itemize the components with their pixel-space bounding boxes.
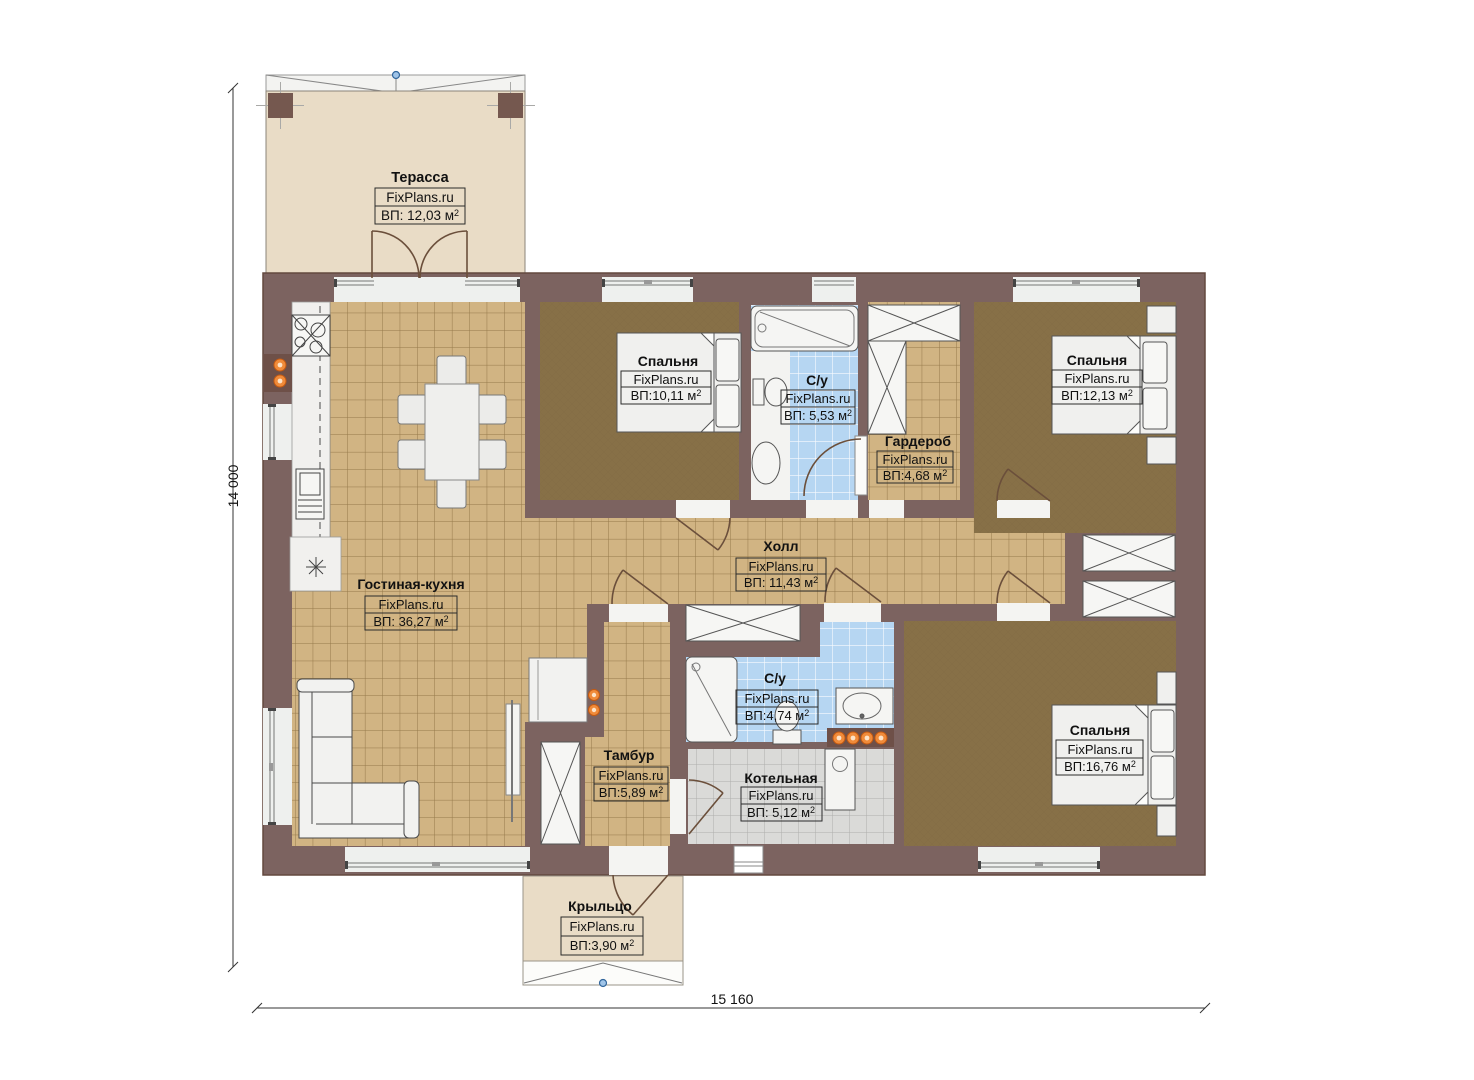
svg-text:Котельная: Котельная <box>744 770 817 786</box>
svg-text:FixPlans.ru: FixPlans.ru <box>882 452 947 467</box>
svg-text:ВП: 36,27 м2: ВП: 36,27 м2 <box>373 614 448 629</box>
svg-text:FixPlans.ru: FixPlans.ru <box>386 190 454 205</box>
svg-text:Спальня: Спальня <box>1067 352 1127 368</box>
svg-text:Гардероб: Гардероб <box>885 433 952 449</box>
svg-text:С/у: С/у <box>806 372 828 388</box>
svg-text:FixPlans.ru: FixPlans.ru <box>744 691 809 706</box>
svg-text:Тамбур: Тамбур <box>604 747 655 763</box>
svg-text:ВП:16,76 м2: ВП:16,76 м2 <box>1064 759 1136 774</box>
svg-text:ВП: 12,03 м2: ВП: 12,03 м2 <box>381 208 459 223</box>
svg-text:ВП:3,90 м2: ВП:3,90 м2 <box>570 938 635 953</box>
svg-text:Гостиная-кухня: Гостиная-кухня <box>357 576 464 592</box>
svg-text:Холл: Холл <box>763 538 798 554</box>
svg-text:Спальня: Спальня <box>1070 722 1130 738</box>
svg-text:ВП: 11,43 м2: ВП: 11,43 м2 <box>744 575 818 590</box>
svg-text:ВП: 5,53 м2: ВП: 5,53 м2 <box>784 408 852 423</box>
svg-text:FixPlans.ru: FixPlans.ru <box>633 372 698 387</box>
svg-text:Крыльцо: Крыльцо <box>568 898 632 914</box>
svg-text:ВП:10,11 м2: ВП:10,11 м2 <box>631 388 702 403</box>
svg-text:Терасса: Терасса <box>391 170 449 186</box>
svg-text:15 160: 15 160 <box>711 991 754 1007</box>
svg-text:ВП:12,13 м2: ВП:12,13 м2 <box>1061 388 1133 403</box>
svg-text:FixPlans.ru: FixPlans.ru <box>1064 371 1129 386</box>
svg-text:FixPlans.ru: FixPlans.ru <box>785 391 850 406</box>
svg-text:ВП:4,68 м2: ВП:4,68 м2 <box>883 468 948 483</box>
svg-text:ВП:5,89 м2: ВП:5,89 м2 <box>599 785 664 800</box>
svg-text:ВП: 5,12 м2: ВП: 5,12 м2 <box>747 805 815 820</box>
svg-text:FixPlans.ru: FixPlans.ru <box>569 919 634 934</box>
svg-text:14 000: 14 000 <box>225 464 241 507</box>
svg-text:ВП:4,74 м2: ВП:4,74 м2 <box>745 708 810 723</box>
svg-text:FixPlans.ru: FixPlans.ru <box>748 788 813 803</box>
svg-text:С/у: С/у <box>764 670 786 686</box>
svg-text:Спальня: Спальня <box>638 353 698 369</box>
svg-text:FixPlans.ru: FixPlans.ru <box>1067 742 1132 757</box>
svg-text:FixPlans.ru: FixPlans.ru <box>748 559 813 574</box>
svg-text:FixPlans.ru: FixPlans.ru <box>378 597 443 612</box>
svg-text:FixPlans.ru: FixPlans.ru <box>598 768 663 783</box>
